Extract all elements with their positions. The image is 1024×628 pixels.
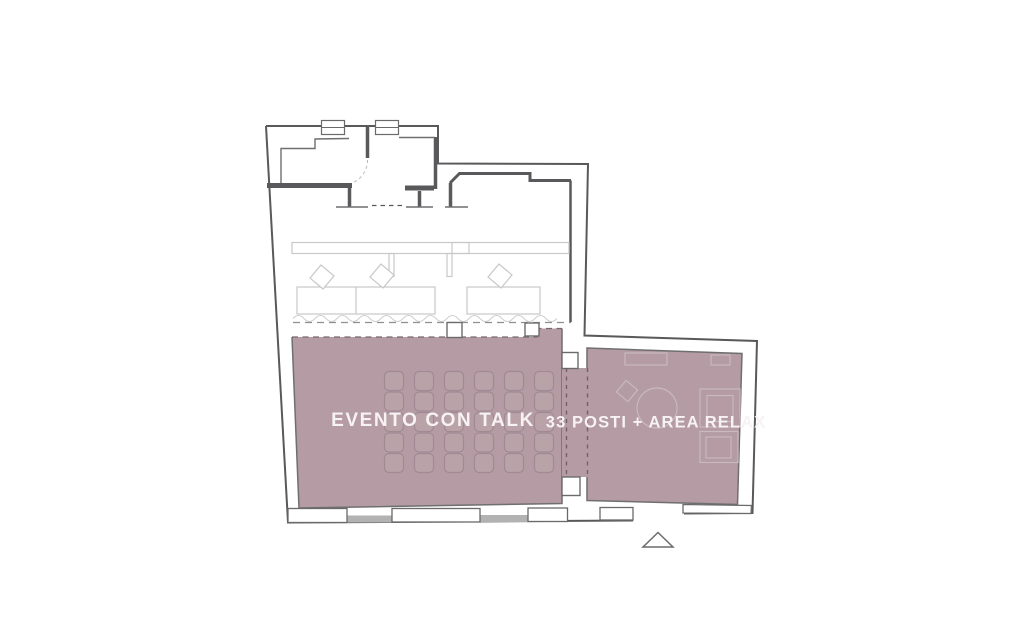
seat [475,392,494,411]
seat [445,433,464,452]
windows-top [322,121,399,135]
window-glass [480,515,528,522]
desk-left [297,287,435,314]
zone-relax-label: 33 POSTI + AREA RELAX [546,414,766,432]
curtain-wave [293,316,557,322]
zone-evento-label: EVENTO CON TALK [331,410,535,431]
seat [535,454,554,473]
seat [415,392,434,411]
seat [415,433,434,452]
window-glass [347,516,392,523]
seat [415,372,434,391]
window-icon [376,121,399,135]
door-swing-arc [343,160,368,185]
seat [445,454,464,473]
curtain-boundary [293,316,571,323]
seat [535,392,554,411]
seat [475,372,494,391]
seat [535,433,554,452]
seat [505,372,524,391]
seat [445,372,464,391]
floor-plan-canvas: EVENTO CON TALK 33 POSTI + AREA RELAX [0,0,1024,628]
seat [385,372,404,391]
seat [505,454,524,473]
wall-stub [562,353,578,369]
column-icon [447,323,462,338]
shelf-right-return [447,254,452,277]
seat [535,372,554,391]
shelf-left [292,243,469,254]
entrance-triangle-icon [643,533,673,548]
seat [385,392,404,411]
office-furniture [292,243,569,315]
office-chair-icon [370,264,394,288]
seat [505,433,524,452]
desk-right [467,287,540,314]
seat [505,392,524,411]
seat [415,454,434,473]
seat [445,392,464,411]
column-icon [525,323,539,336]
window-icon [322,121,345,135]
seat [475,454,494,473]
office-chair-icon [310,265,334,289]
wall-stub [562,477,580,496]
office-chair-icon [488,264,512,288]
seat [385,454,404,473]
entrance-arrow [643,533,673,548]
seat [385,433,404,452]
seat [475,433,494,452]
columns [447,323,539,338]
